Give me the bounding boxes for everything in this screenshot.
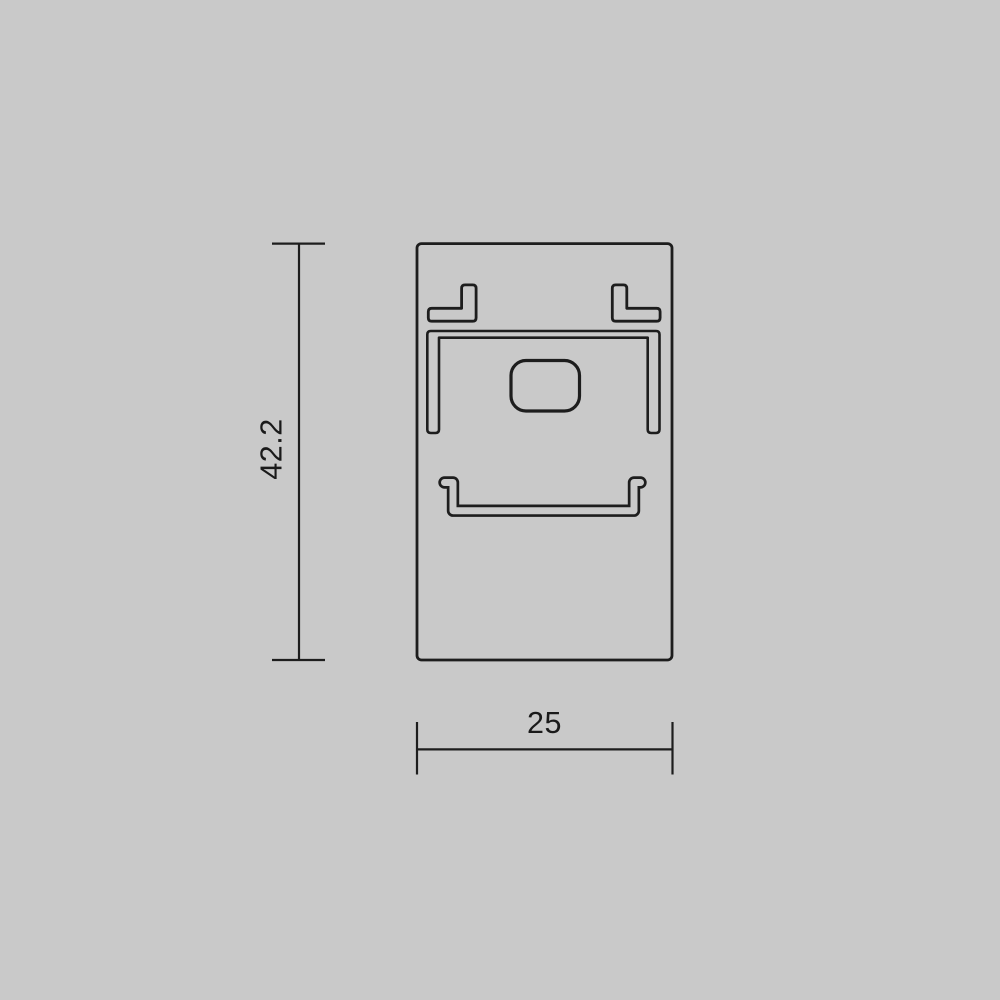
width-dimension: 25 [417, 706, 673, 775]
profile-body [417, 244, 672, 660]
left-clip-bracket [428, 285, 476, 321]
lower-channel-outline [445, 483, 641, 511]
right-clip-bracket [612, 285, 660, 321]
height-dimension: 42.2 [255, 244, 326, 660]
drawing-canvas: 42.2 25 [0, 0, 1000, 1000]
height-dimension-label: 42.2 [255, 418, 289, 479]
technical-drawing: 42.2 25 [0, 0, 1000, 1000]
width-dimension-label: 25 [527, 706, 562, 740]
inner-rail-channel [427, 331, 659, 433]
center-cutout [511, 361, 580, 412]
lower-diffuser-channel [445, 483, 641, 511]
profile-outer-rectangle [417, 244, 672, 660]
